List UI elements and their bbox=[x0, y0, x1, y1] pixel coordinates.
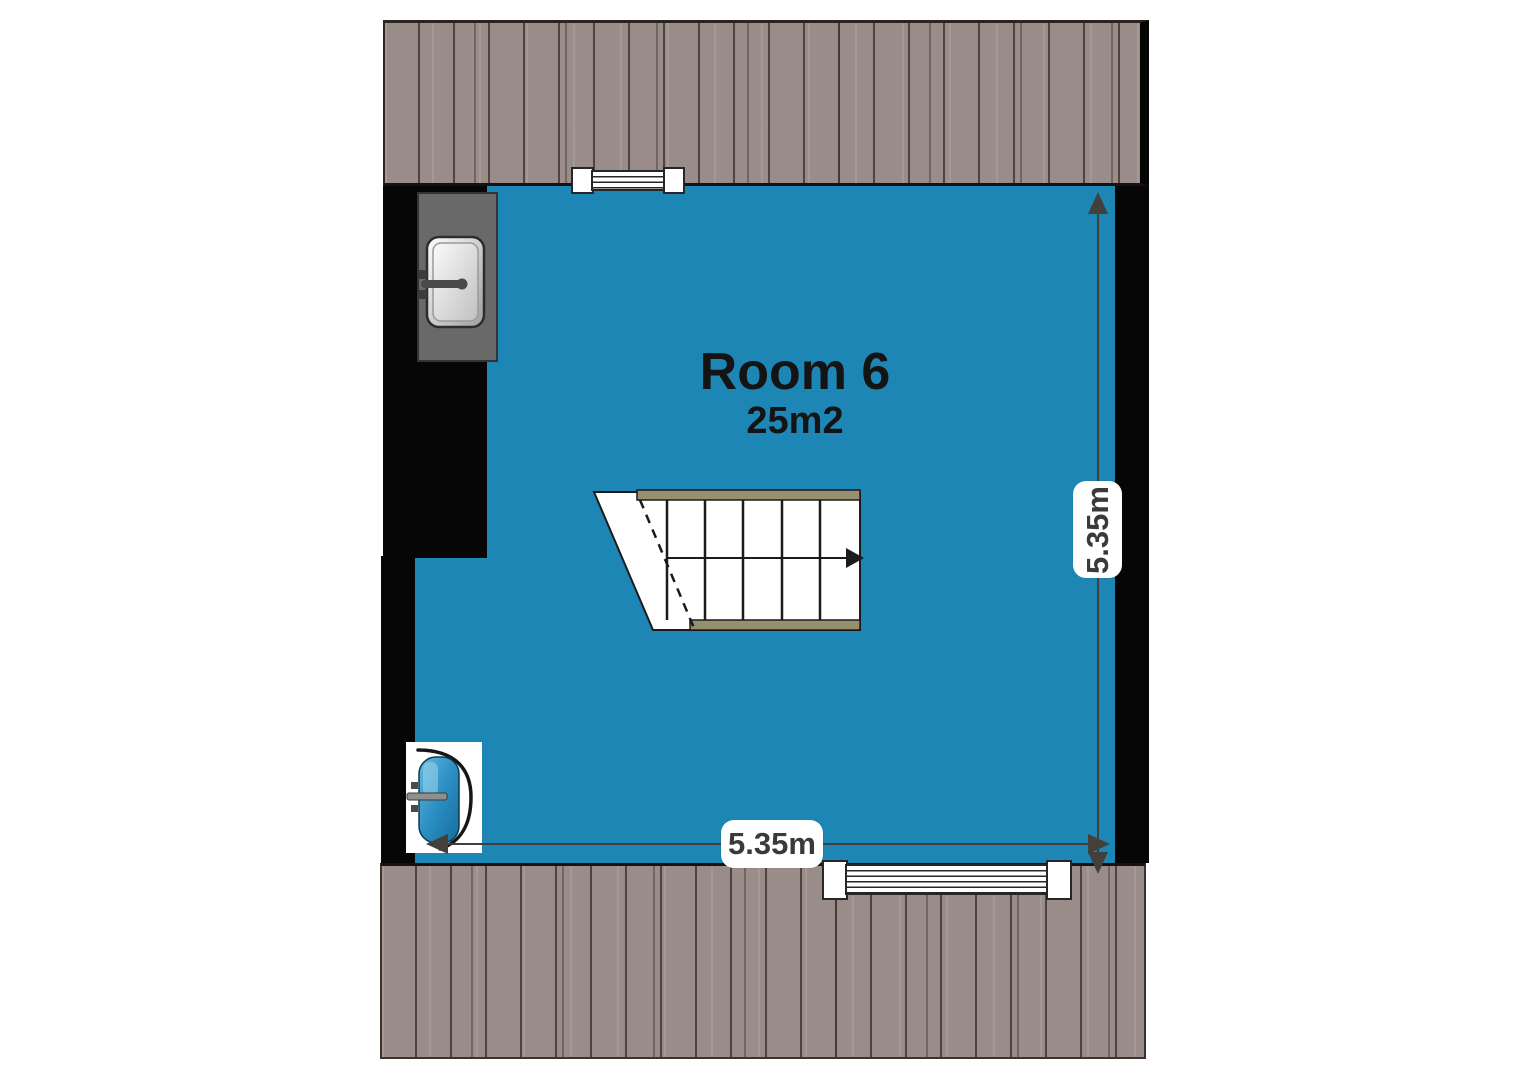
floorplan-canvas: 5.35m 5.35m Room 6 25m2 bbox=[0, 0, 1528, 1080]
arrow-right-icon bbox=[1088, 834, 1110, 854]
dimension-label-width: 5.35m bbox=[721, 820, 823, 868]
dimension-height-text: 5.35m bbox=[1080, 486, 1116, 574]
sink-icon bbox=[417, 192, 498, 362]
window-glass bbox=[845, 864, 1049, 895]
room-name-label: Room 6 bbox=[615, 342, 975, 402]
window-cap bbox=[1046, 860, 1072, 900]
arrow-up-icon bbox=[1088, 192, 1108, 214]
arrow-down-icon bbox=[1088, 852, 1108, 874]
dimension-width-text: 5.35m bbox=[728, 826, 816, 862]
roof-band-top bbox=[383, 20, 1149, 186]
dimension-label-height: 5.35m bbox=[1073, 481, 1122, 578]
window-glass bbox=[591, 170, 666, 191]
window-cap bbox=[663, 167, 685, 194]
arrow-left-icon bbox=[426, 834, 448, 854]
room-area-label: 25m2 bbox=[615, 400, 975, 443]
stairs-icon bbox=[590, 486, 866, 636]
